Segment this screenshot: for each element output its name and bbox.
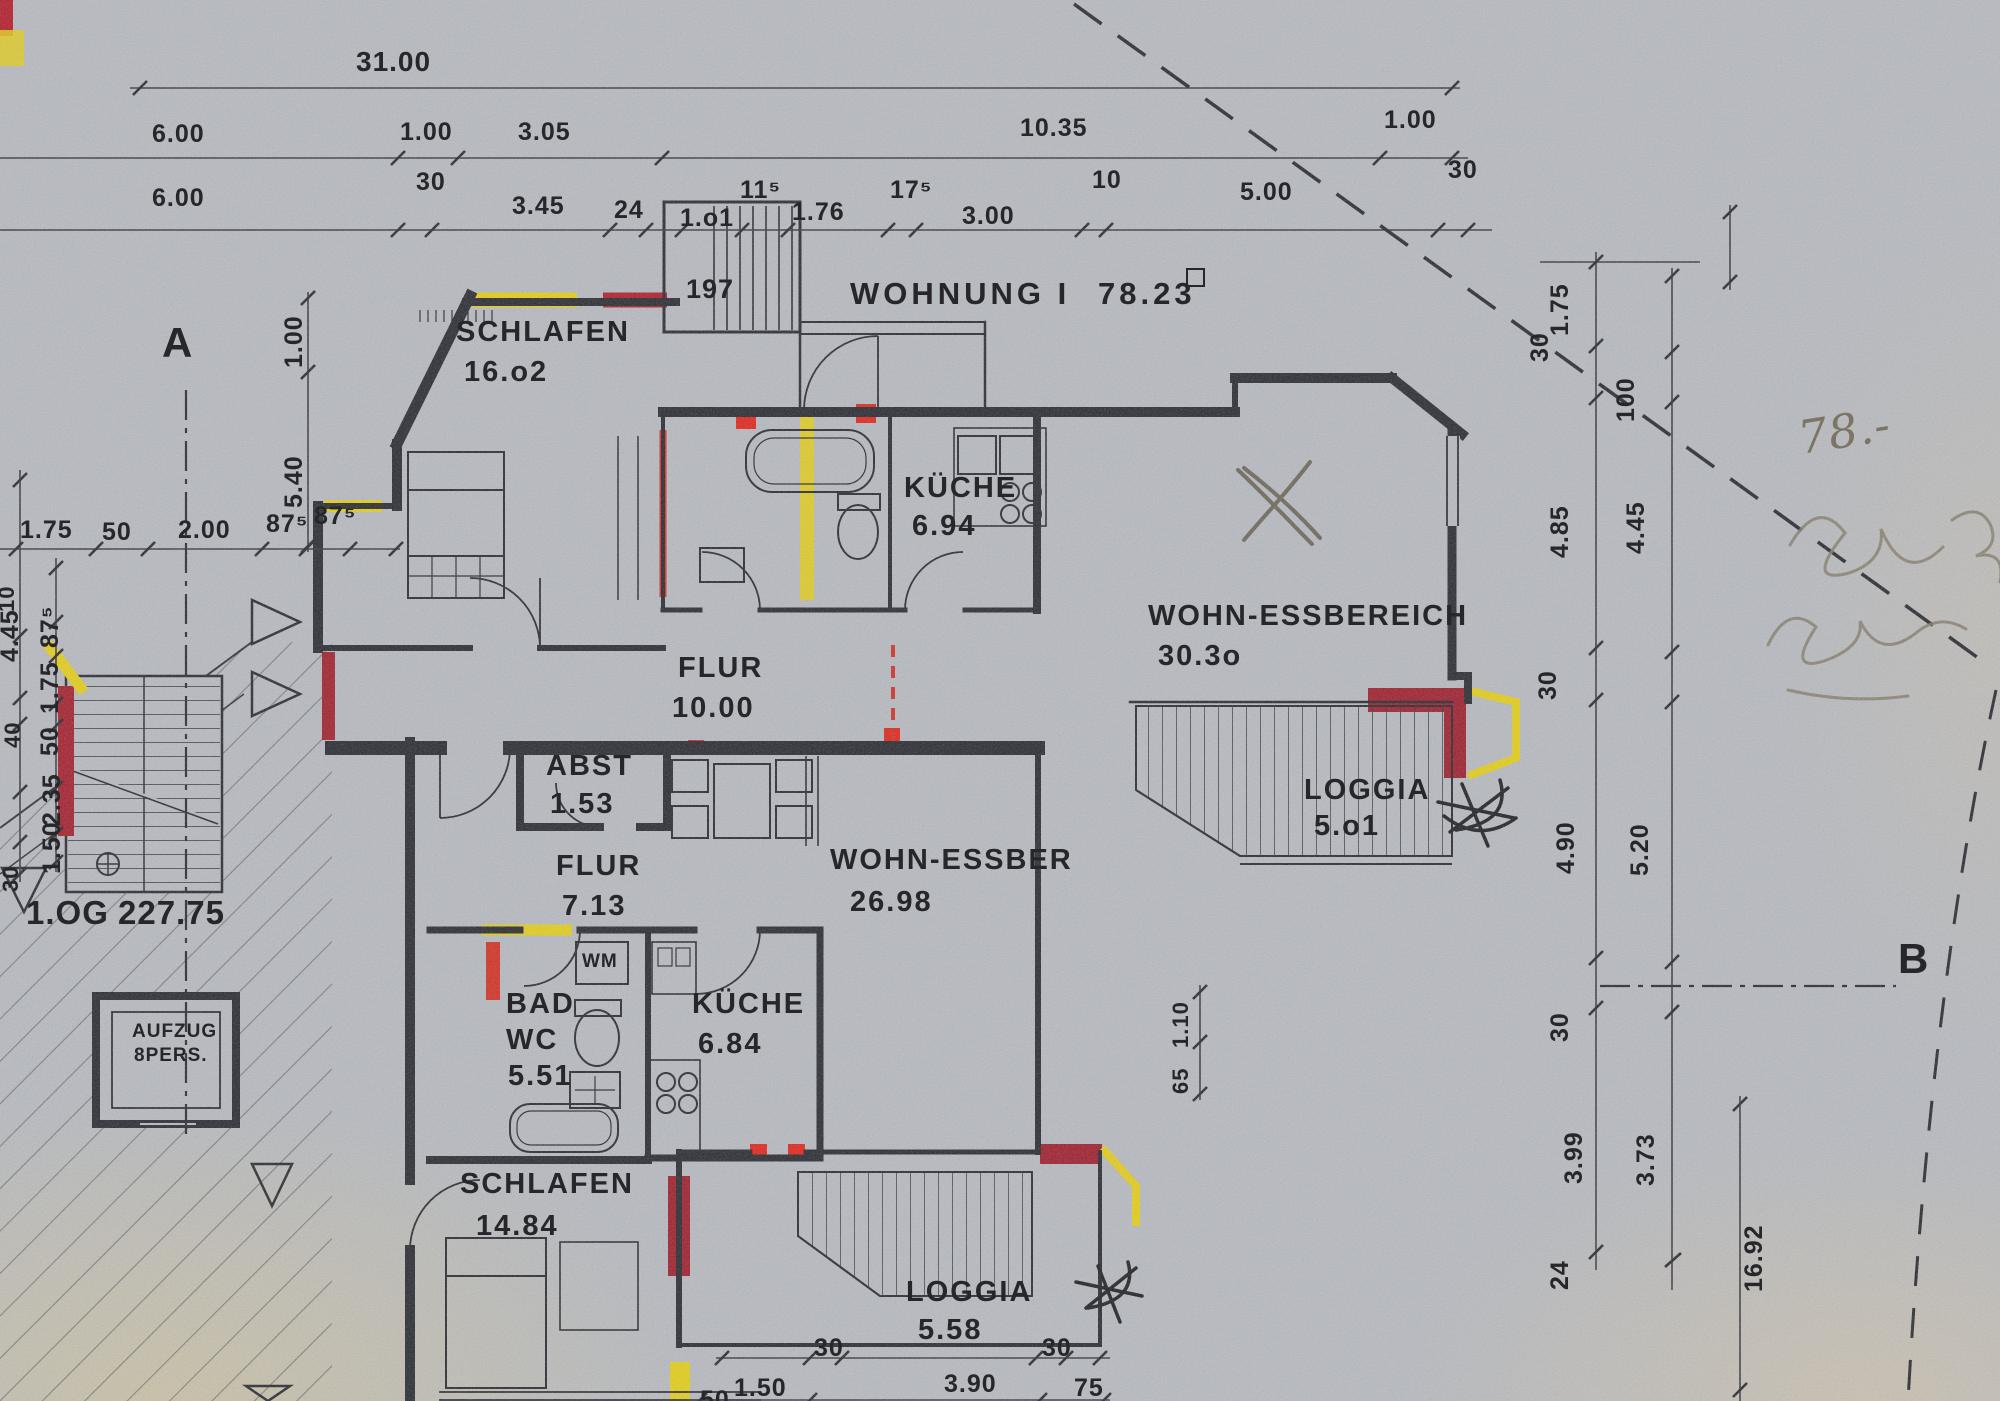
dim-left-col-7: 1.50 (40, 821, 65, 874)
dim-bottom-lower-0: 1.50 (734, 1376, 787, 1401)
dim-row3-5: 11⁵ (740, 178, 781, 203)
dim-row3-0: 6.00 (152, 186, 205, 211)
room-flur1-area: 10.00 (672, 694, 755, 723)
room-flur1: FLUR (678, 654, 763, 683)
dim-row3-2: 3.45 (512, 194, 565, 219)
floor-area-label: 227.75 (118, 896, 225, 929)
room-kueche2-area: 6.84 (698, 1030, 762, 1059)
dim-row3-1: 30 (416, 170, 446, 195)
dim-right-extra: 16.92 (1742, 1224, 1767, 1292)
room-wohnessbereich-area: 30.3o (1158, 642, 1242, 671)
dim-left-col-4: 50 (38, 726, 63, 756)
dim-row3-9: 10 (1092, 168, 1122, 193)
dim-row3-8: 3.00 (962, 204, 1015, 229)
dim-left-row-4: 87⁵ (314, 504, 357, 529)
dim-row3-3: 24 (614, 198, 644, 223)
dim-left-col-1: 10 (0, 586, 18, 612)
dim-loggia-chain-1: 65 (1170, 1068, 1192, 1094)
room-bad: BAD (506, 990, 575, 1019)
dim-bottom-upper-0: 30 (814, 1336, 844, 1361)
room-kueche1-area: 6.94 (912, 512, 976, 541)
dim-right1-7: 24 (1548, 1260, 1573, 1290)
dim-bottom-upper-1: 30 (1042, 1336, 1072, 1361)
dim-bottom-lower-1: 3.90 (944, 1372, 997, 1397)
room-abst-area: 1.53 (550, 790, 614, 819)
dim-right2-0: 100 (1614, 377, 1639, 422)
room-schlafen2-area: 14.84 (476, 1212, 559, 1241)
dim-row3-7: 17⁵ (890, 178, 933, 203)
room-bad-area: 5.51 (508, 1062, 572, 1091)
dim-row2-0: 6.00 (152, 122, 205, 147)
room-kueche2: KÜCHE (692, 990, 805, 1019)
room-wohnessber2: WOHN-ESSBER (830, 846, 1073, 875)
room-schlafen1-area: 16.o2 (464, 358, 548, 387)
dim-overall: 31.00 (356, 48, 431, 76)
dim-right2-3: 3.73 (1634, 1133, 1659, 1186)
stair-number: 197 (686, 276, 734, 303)
dim-left-row-3: 87⁵ (266, 512, 309, 537)
dim-row2-3: 10.35 (1020, 116, 1088, 141)
dim-bottom-lower-2: 75 (1074, 1376, 1104, 1401)
room-abst: ABST (546, 752, 633, 781)
handwritten-price: 78.- (1795, 401, 1894, 461)
dim-row2-2: 3.05 (518, 120, 571, 145)
room-loggia2-area: 5.58 (918, 1316, 982, 1345)
dim-row3-10: 5.00 (1240, 180, 1293, 205)
section-marker-a: A (162, 322, 193, 364)
dim-left-col-8: 30 (0, 866, 22, 892)
room-loggia2: LOGGIA (906, 1278, 1032, 1307)
dim-left-col-3: 1.75 (38, 661, 63, 714)
floor-label: 1.OG (26, 896, 109, 929)
room-bad-wc: WC (506, 1026, 558, 1055)
room-wohnessber2-area: 26.98 (850, 888, 933, 917)
dim-right1-0: 30 (1528, 332, 1553, 362)
room-flur2: FLUR (556, 852, 641, 881)
dim-row3-4: 1.o1 (680, 206, 734, 231)
washing-machine-label: WM (582, 952, 618, 971)
room-wohnessbereich: WOHN-ESSBEREICH (1148, 602, 1468, 631)
dim-row2-1: 1.00 (400, 120, 453, 145)
apartment-area: 78.23 (1098, 278, 1196, 309)
dim-left-chain-1: 5.40 (282, 455, 307, 508)
dim-right2-2: 5.20 (1628, 823, 1653, 876)
dim-left-row-1: 50 (102, 520, 132, 545)
dim-left-row-2: 2.00 (178, 518, 231, 543)
dim-loggia-chain-0: 1.10 (1170, 1001, 1192, 1048)
room-schlafen2: SCHLAFEN (460, 1170, 634, 1199)
dim-left-chain-0: 1.00 (282, 315, 307, 368)
dim-row3-6: 1.76 (792, 200, 845, 225)
room-kueche1: KÜCHE (904, 474, 1017, 503)
elevator-label: AUFZUG (132, 1022, 217, 1041)
dim-right1-4: 4.90 (1554, 821, 1579, 874)
dim-right1-2: 4.85 (1548, 505, 1573, 558)
room-flur2-area: 7.13 (562, 892, 626, 921)
dim-right1-3: 30 (1536, 670, 1561, 700)
dim-left-col-5: 40 (2, 722, 24, 748)
room-loggia1-area: 5.o1 (1314, 812, 1380, 841)
room-schlafen1: SCHLAFEN (456, 318, 630, 347)
dim-right1-5: 30 (1548, 1012, 1573, 1042)
dim-right1-6: 3.99 (1562, 1131, 1587, 1184)
dim-row3-11: 30 (1448, 158, 1478, 183)
dim-left-row-0: 1.75 (20, 518, 73, 543)
apartment-title: WOHNUNG I (850, 278, 1070, 309)
dim-bottom-lower-3: 50 (700, 1388, 730, 1401)
dim-right1-1: 1.75 (1548, 283, 1573, 336)
section-marker-b: B (1898, 938, 1929, 980)
sqm-symbol (1186, 268, 1205, 287)
dim-left-col-6: 2.35 (40, 773, 65, 826)
dim-left-col-0: 4.45 (0, 609, 23, 662)
floorplan-scan: WOHNUNG I 78.23 197 SCHLAFEN 16.o2 KÜCHE… (0, 0, 2000, 1401)
room-loggia1: LOGGIA (1304, 776, 1430, 805)
dim-right2-1: 4.45 (1624, 501, 1649, 554)
dim-row2-4: 1.00 (1384, 108, 1437, 133)
elevator-capacity-label: 8PERS. (134, 1046, 208, 1065)
dim-left-col-2: 87⁵ (38, 605, 63, 648)
